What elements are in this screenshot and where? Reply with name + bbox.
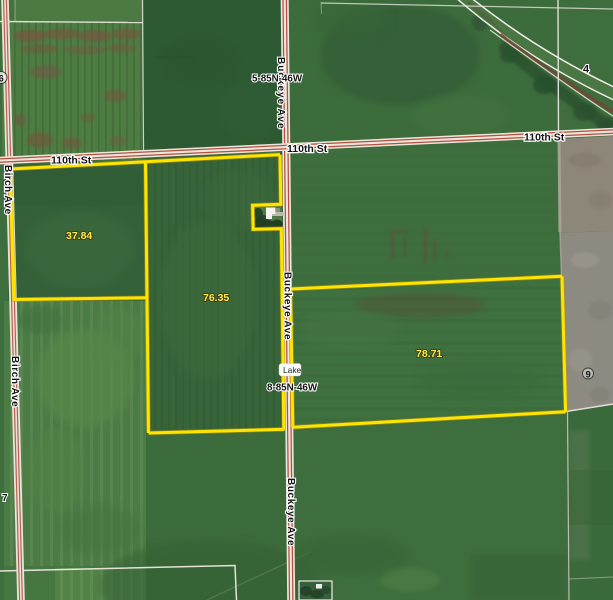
svg-text:4: 4 xyxy=(583,64,590,76)
svg-text:110th St: 110th St xyxy=(287,143,328,155)
svg-text:110th St: 110th St xyxy=(524,132,565,144)
svg-text:Buckeye Ave: Buckeye Ave xyxy=(285,478,296,546)
svg-text:Buckeye Ave: Buckeye Ave xyxy=(275,57,286,130)
svg-text:76.35: 76.35 xyxy=(203,292,229,304)
svg-text:8-85N-46W: 8-85N-46W xyxy=(267,383,318,394)
svg-text:9: 9 xyxy=(586,370,591,381)
svg-text:5-85N-46W: 5-85N-46W xyxy=(252,74,303,85)
svg-text:Birch Ave: Birch Ave xyxy=(2,165,13,215)
svg-text:78.71: 78.71 xyxy=(416,348,442,360)
svg-text:Birch Ave: Birch Ave xyxy=(9,356,20,407)
svg-text:110th St: 110th St xyxy=(51,155,92,167)
svg-text:Buckeye Ave: Buckeye Ave xyxy=(282,272,293,340)
svg-text:37.84: 37.84 xyxy=(66,230,92,242)
svg-text:7: 7 xyxy=(2,493,8,504)
svg-text:6: 6 xyxy=(0,74,4,85)
svg-text:Lake: Lake xyxy=(283,365,302,375)
